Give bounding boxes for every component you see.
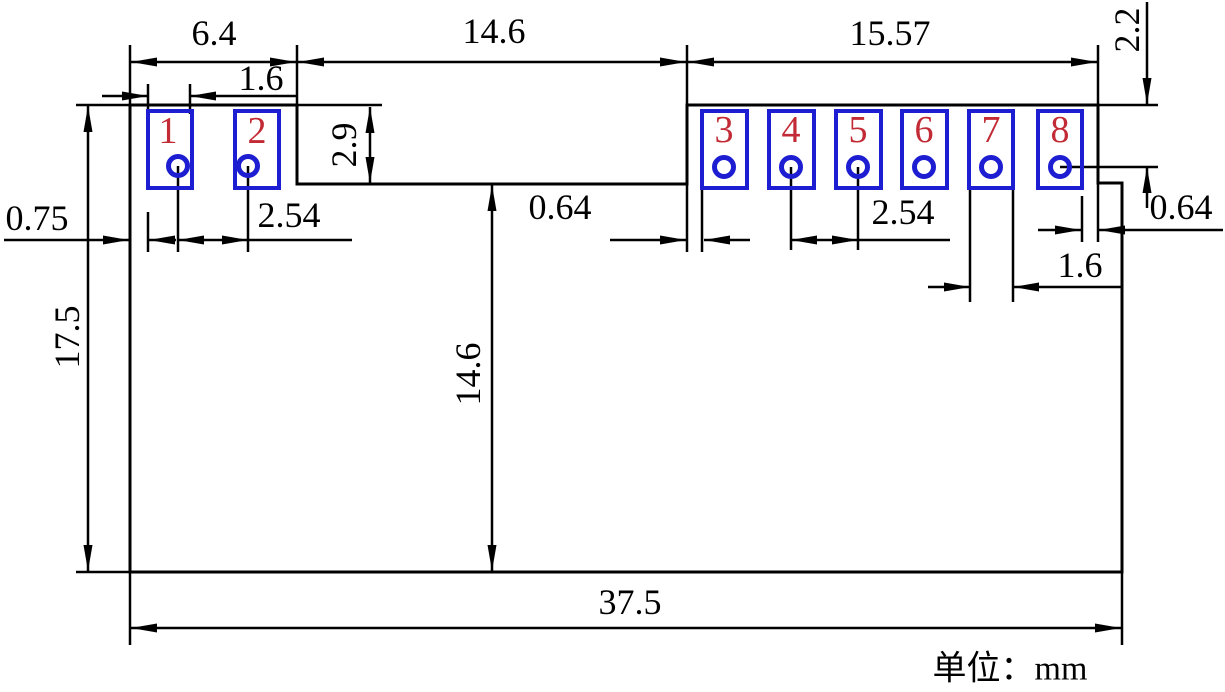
unit-label: 单位：mm — [933, 650, 1088, 688]
arrowhead — [1143, 78, 1152, 104]
dim-notch-to-pad3: 0.64 — [529, 187, 592, 227]
arrowhead — [178, 236, 204, 245]
dim-notch-width: 14.6 — [463, 11, 526, 51]
dim-notch-to-bottom-height: 14.6 — [448, 343, 488, 406]
pad-number: 5 — [849, 109, 868, 151]
pad-number: 8 — [1051, 109, 1070, 151]
arrowhead — [366, 107, 375, 133]
pad-3: 3 — [702, 109, 747, 188]
pad-number: 6 — [915, 109, 934, 151]
dim-left-pad-pitch: 2.54 — [258, 195, 321, 235]
dim-overall-width: 37.5 — [599, 582, 662, 622]
arrowhead — [660, 58, 686, 67]
arrowhead — [190, 92, 216, 101]
arrowhead — [103, 236, 129, 245]
dim-notch-depth: 2.9 — [324, 123, 364, 168]
arrowhead — [122, 92, 148, 101]
dim-pad1-width: 1.6 — [239, 58, 284, 98]
pad-6: 6 — [902, 109, 947, 188]
dim-overall-height: 17.5 — [47, 306, 87, 369]
dim-right-pad-pitch: 2.54 — [872, 192, 935, 232]
dim-right-section-width: 15.57 — [850, 13, 931, 53]
pad-8: 8 — [1038, 109, 1082, 188]
pad-5: 5 — [836, 109, 881, 188]
arrowhead — [488, 545, 497, 571]
pad-7: 7 — [969, 109, 1013, 188]
dim-left-edge-to-pad1: 0.75 — [6, 198, 69, 238]
pad-number: 3 — [715, 109, 734, 151]
arrowhead — [222, 236, 248, 245]
pad-hole — [982, 158, 1001, 177]
arrowhead — [131, 58, 157, 67]
dim-pad7-width: 1.6 — [1058, 245, 1103, 285]
dim-left-section-width: 6.4 — [192, 13, 237, 53]
dimension-drawing-page: 1 2 3 4 5 6 7 8 6.4 14.6 15.57 — [0, 0, 1225, 692]
pcb-footprint-drawing: 1 2 3 4 5 6 7 8 6.4 14.6 15.57 — [0, 0, 1225, 692]
arrowhead — [1071, 58, 1097, 67]
arrowhead — [84, 545, 93, 571]
arrowhead — [149, 236, 175, 245]
arrowhead — [688, 58, 714, 67]
pad-4: 4 — [769, 109, 814, 188]
pad-hole — [715, 158, 734, 177]
pad-number: 4 — [782, 109, 801, 151]
arrowhead — [1055, 226, 1081, 235]
arrowhead — [832, 236, 858, 245]
pad-number: 1 — [159, 110, 178, 152]
arrowhead — [660, 236, 686, 245]
arrowhead — [366, 157, 375, 183]
arrowhead — [84, 106, 93, 132]
arrowhead — [1095, 624, 1121, 633]
arrowhead — [1013, 283, 1039, 292]
dimension-lines — [4, 2, 1223, 628]
dim-pad8-to-right-edge: 0.64 — [1150, 187, 1213, 227]
arrowhead — [488, 185, 497, 211]
pad-2: 2 — [235, 110, 279, 188]
arrowhead — [298, 58, 324, 67]
dim-top-edge-to-hole: 2.2 — [1107, 8, 1147, 53]
arrowhead — [791, 236, 817, 245]
arrowhead — [1099, 226, 1125, 235]
pad-number: 2 — [248, 110, 267, 152]
arrowhead — [944, 283, 970, 292]
pad-1: 1 — [148, 110, 192, 188]
pad-hole — [915, 158, 934, 177]
pad-number: 7 — [982, 109, 1001, 151]
arrowhead — [704, 236, 730, 245]
arrowhead — [131, 624, 157, 633]
